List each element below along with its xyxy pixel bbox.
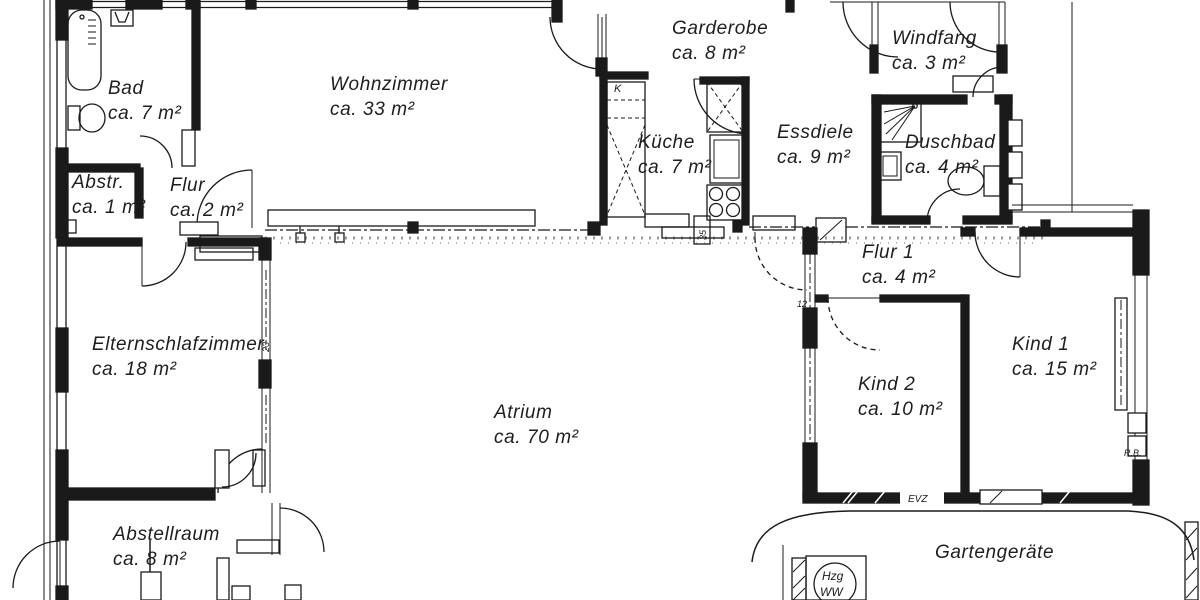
terrace-edge-lines: [44, 0, 50, 600]
atrium-corner-door-arc: [280, 508, 324, 552]
room-label-gartengeraete: Gartengeräte: [935, 540, 1054, 565]
kind2-door-arc: [828, 298, 880, 350]
eltern-door-arc: [142, 242, 186, 286]
right-exterior-wall: [1115, 210, 1149, 505]
room-label-flur1: Flur 1ca. 4 m²: [862, 240, 935, 290]
kueche-counter: [645, 214, 724, 244]
kueche-door-arc: [694, 79, 749, 134]
room-label-kind1: Kind 1ca. 15 m²: [1012, 332, 1097, 382]
room-label-wohnzimmer: Wohnzimmerca. 33 m²: [330, 72, 448, 122]
room-label-atrium: Atriumca. 70 m²: [494, 400, 579, 450]
washbasin-symbol: [111, 10, 133, 26]
rb-label: R.B.: [1124, 448, 1142, 458]
toilet-bad-symbol: [68, 104, 105, 132]
room-label-kind2: Kind 2ca. 10 m²: [858, 372, 943, 422]
floorplan-page: K 35 12 23 EVZ R.B. Hzg WW Badca. 7 m² A…: [0, 0, 1200, 600]
heater-label-top: Hzg: [822, 569, 844, 583]
room-label-eltern: Elternschlafzimmerca. 18 m²: [92, 332, 264, 382]
duschbad-sink-symbol: [879, 152, 901, 180]
bathtub-symbol: [68, 10, 101, 90]
room-label-flur: Flurca. 2 m²: [170, 173, 243, 223]
essdiele-sill: [753, 216, 846, 242]
stove-symbol: [707, 185, 743, 220]
garderobe-door-arc: [550, 17, 602, 69]
top-exterior-wall: [56, 0, 562, 22]
room-label-kueche: Kücheca. 7 m²: [638, 130, 711, 180]
bad-door-arc: [140, 136, 172, 168]
room-label-garderobe: Garderobeca. 8 m²: [672, 16, 768, 66]
left-exterior-wall: [56, 0, 68, 600]
abstellraum-left-door-arc: [13, 541, 60, 588]
duschbad-door-arc: [927, 189, 960, 222]
room-label-essdiele: Essdieleca. 9 m²: [777, 120, 854, 170]
kind1-door-arc: [975, 232, 1020, 277]
garden-boundary-lines: [1012, 2, 1133, 212]
room-label-windfang: Windfangca. 3 m²: [892, 26, 977, 76]
room-label-abstr: Abstr.ca. 1 m²: [72, 170, 145, 220]
flur1-dim-label: 12: [797, 299, 807, 309]
kitchen-cabinet-label: K: [614, 83, 622, 95]
evz-label: EVZ: [908, 494, 928, 505]
room-label-duschbad: Duschbadca. 4 m²: [905, 130, 995, 180]
kitchen-dim-label: 35: [698, 229, 708, 240]
room-label-bad: Badca. 7 m²: [108, 76, 181, 126]
heater-label-bottom: WW: [820, 585, 844, 599]
room-label-abstellraum: Abstellraumca. 8 m²: [113, 522, 220, 572]
flur1-essdiele-door-arc: [755, 232, 807, 290]
